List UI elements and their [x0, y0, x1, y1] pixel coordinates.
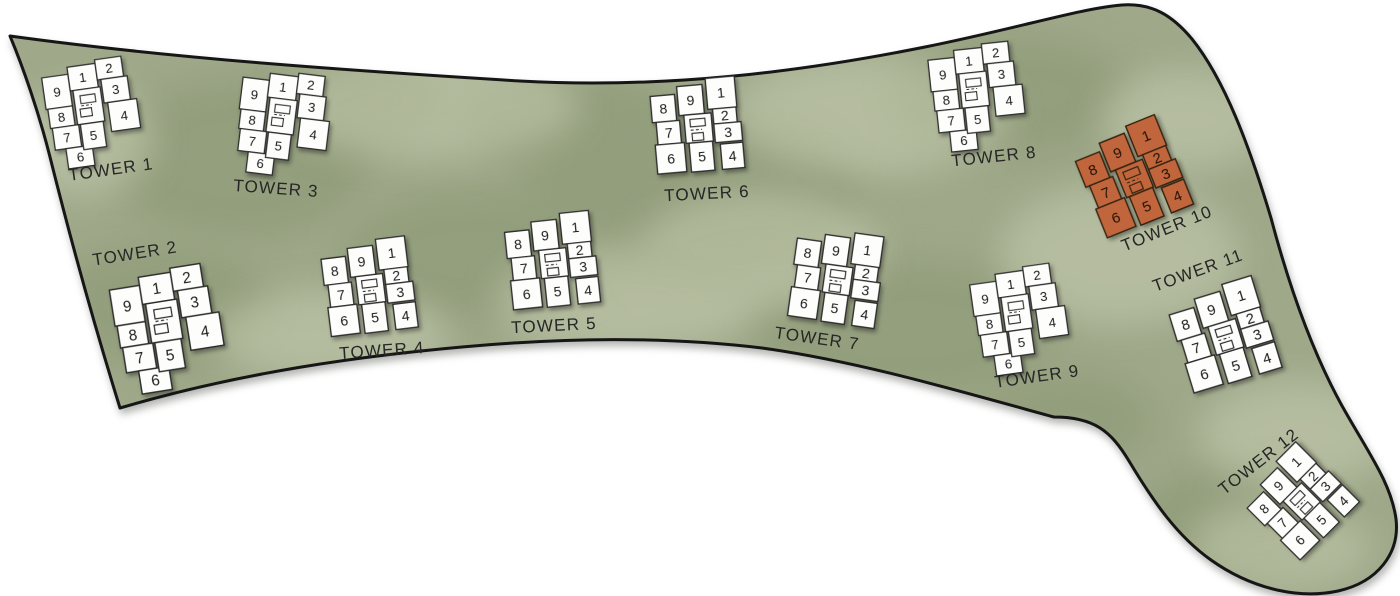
tower-4-unit-9[interactable]: 9 — [347, 245, 376, 277]
tower-8-floorplate: 987615234 — [926, 36, 1029, 155]
unit-number: 2 — [720, 107, 729, 124]
site-plan: 987615234TOWER 1987615234TOWER 298761523… — [0, 0, 1400, 596]
unit-number: 9 — [938, 67, 947, 83]
unit-number: 3 — [724, 124, 733, 141]
tower-5-unit-4[interactable]: 4 — [576, 276, 601, 304]
unit-number: 6 — [959, 133, 968, 149]
tower-9-unit-1[interactable]: 1 — [995, 270, 1026, 298]
tower-6-unit-7[interactable]: 7 — [656, 120, 681, 145]
unit-number: 6 — [666, 150, 675, 167]
tower-5-unit-8[interactable]: 8 — [505, 230, 532, 259]
tower-1-unit-3[interactable]: 3 — [101, 76, 131, 103]
tower-3-unit-9[interactable]: 9 — [239, 77, 269, 112]
tower-6-unit-3[interactable]: 3 — [714, 122, 743, 143]
tower-8-core — [959, 71, 990, 108]
tower-8-unit-3[interactable]: 3 — [987, 61, 1016, 88]
tower-5-unit-6[interactable]: 6 — [511, 278, 543, 310]
tower-4-unit-4[interactable]: 4 — [393, 302, 418, 330]
tower-8-unit-2[interactable]: 2 — [981, 41, 1010, 64]
tower-4-floorplate: 876951234 — [319, 235, 424, 344]
tower-1-floorplate: 987615234 — [39, 51, 145, 173]
tower-6-unit-5[interactable]: 5 — [689, 141, 715, 172]
unit-number: 8 — [942, 93, 951, 109]
unit-number: 5 — [697, 148, 706, 165]
tower-3-core — [266, 97, 297, 135]
tower-3-unit-1[interactable]: 1 — [267, 73, 298, 100]
tower-3-unit-7[interactable]: 7 — [238, 128, 267, 153]
tower-8-unit-1[interactable]: 1 — [954, 47, 985, 74]
tower-9-unit-5[interactable]: 5 — [1008, 328, 1034, 357]
tower-7-unit-1[interactable]: 1 — [851, 233, 884, 268]
tower-2-unit-5[interactable]: 5 — [155, 338, 186, 371]
tower-9-unit-4[interactable]: 4 — [1036, 306, 1069, 339]
tower-11-unit-4[interactable]: 4 — [1251, 341, 1281, 373]
tower-8-unit-7[interactable]: 7 — [937, 108, 966, 133]
tower-3-unit-5[interactable]: 5 — [265, 132, 291, 160]
tower-8-unit-8[interactable]: 8 — [933, 89, 960, 111]
tower-9-unit-9[interactable]: 9 — [970, 281, 1001, 316]
tower-7-unit-8[interactable]: 8 — [794, 238, 822, 267]
tower-7-unit-4[interactable]: 4 — [852, 300, 878, 328]
unit-number: 5 — [973, 112, 982, 128]
unit-number: 7 — [664, 124, 673, 141]
tower-4-unit-3[interactable]: 3 — [386, 281, 415, 303]
tower-4-unit-8[interactable]: 8 — [321, 256, 348, 285]
tower-4[interactable]: 876951234 — [319, 235, 424, 344]
tower-5[interactable]: 876951234 — [503, 209, 607, 316]
tower-3-unit-2[interactable]: 2 — [296, 73, 325, 96]
tower-1-unit-9[interactable]: 9 — [42, 74, 73, 109]
tower-3-floorplate: 987615234 — [231, 63, 336, 183]
tower-2[interactable]: 987615234 — [106, 257, 230, 398]
tower-6-floorplate: 876951234 — [649, 75, 751, 181]
unit-number: 1 — [716, 84, 725, 101]
tower-5-unit-7[interactable]: 7 — [511, 256, 537, 281]
tower-7-unit-9[interactable]: 9 — [821, 234, 850, 266]
tower-1-unit-4[interactable]: 4 — [108, 99, 141, 132]
tower-4-unit-5[interactable]: 5 — [362, 302, 389, 334]
tower-8[interactable]: 987615234 — [926, 36, 1029, 155]
tower-6[interactable]: 876951234 — [649, 75, 751, 181]
tower-1-unit-1[interactable]: 1 — [67, 63, 98, 91]
tower-7[interactable]: 876951234 — [786, 225, 893, 335]
tower-6-unit-1[interactable]: 1 — [705, 76, 737, 109]
tower-4-unit-7[interactable]: 7 — [328, 282, 354, 307]
tower-2-floorplate: 987615234 — [106, 257, 230, 398]
tower-8-unit-5[interactable]: 5 — [965, 106, 991, 134]
tower-1-unit-7[interactable]: 7 — [52, 125, 81, 151]
unit-number: 8 — [659, 100, 668, 117]
tower-7-unit-5[interactable]: 5 — [821, 292, 848, 324]
unit-number: 4 — [728, 148, 737, 165]
unit-number: 7 — [947, 113, 956, 129]
tower-5-unit-9[interactable]: 9 — [531, 219, 559, 251]
tower-7-floorplate: 876951234 — [786, 225, 893, 335]
tower-6-unit-6[interactable]: 6 — [655, 143, 687, 175]
tower-7-unit-7[interactable]: 7 — [794, 265, 820, 291]
tower-9-unit-7[interactable]: 7 — [980, 332, 1009, 358]
unit-number: 2 — [991, 45, 1000, 61]
tower-5-floorplate: 876951234 — [503, 209, 607, 316]
unit-number: 1 — [964, 53, 973, 69]
tower-5-core — [539, 248, 569, 279]
tower-2-unit-1[interactable]: 1 — [138, 272, 174, 304]
tower-8-unit-4[interactable]: 4 — [993, 84, 1025, 116]
tower-4-core — [355, 274, 385, 305]
tower-2-core — [146, 299, 183, 343]
tower-3-unit-8[interactable]: 8 — [239, 109, 266, 131]
tower-5-unit-5[interactable]: 5 — [544, 276, 570, 307]
tower-7-unit-6[interactable]: 6 — [788, 287, 821, 320]
tower-3-unit-4[interactable]: 4 — [297, 118, 330, 151]
tower-7-core — [822, 264, 853, 296]
tower-6-core — [684, 113, 714, 143]
tower-9-floorplate: 987615234 — [967, 258, 1073, 380]
tower-7-unit-3[interactable]: 3 — [851, 279, 881, 301]
tower-6-unit-8[interactable]: 8 — [650, 94, 677, 122]
tower-3[interactable]: 987615234 — [231, 63, 336, 183]
tower-1[interactable]: 987615234 — [39, 51, 145, 173]
tower-4-unit-6[interactable]: 6 — [328, 304, 360, 336]
tower-2-unit-3[interactable]: 3 — [177, 286, 211, 318]
tower-6-unit-9[interactable]: 9 — [677, 84, 705, 115]
unit-number: 3 — [997, 67, 1006, 83]
tower-1-unit-5[interactable]: 5 — [80, 121, 106, 150]
tower-3-unit-3[interactable]: 3 — [297, 94, 326, 121]
tower-4-unit-1[interactable]: 1 — [375, 236, 408, 270]
tower-9-core — [1001, 294, 1033, 332]
tower-1-core — [73, 87, 105, 125]
tower-5-unit-1[interactable]: 1 — [559, 210, 591, 244]
tower-5-unit-3[interactable]: 3 — [569, 256, 598, 278]
unit-number: 9 — [686, 92, 695, 109]
tower-8-unit-9[interactable]: 9 — [928, 57, 958, 91]
unit-number: 4 — [1005, 93, 1014, 109]
tower-2-unit-4[interactable]: 4 — [186, 312, 224, 350]
tower-9[interactable]: 987615234 — [967, 258, 1073, 380]
tower-9-unit-3[interactable]: 3 — [1029, 283, 1059, 310]
tower-6-unit-4[interactable]: 4 — [720, 142, 745, 169]
